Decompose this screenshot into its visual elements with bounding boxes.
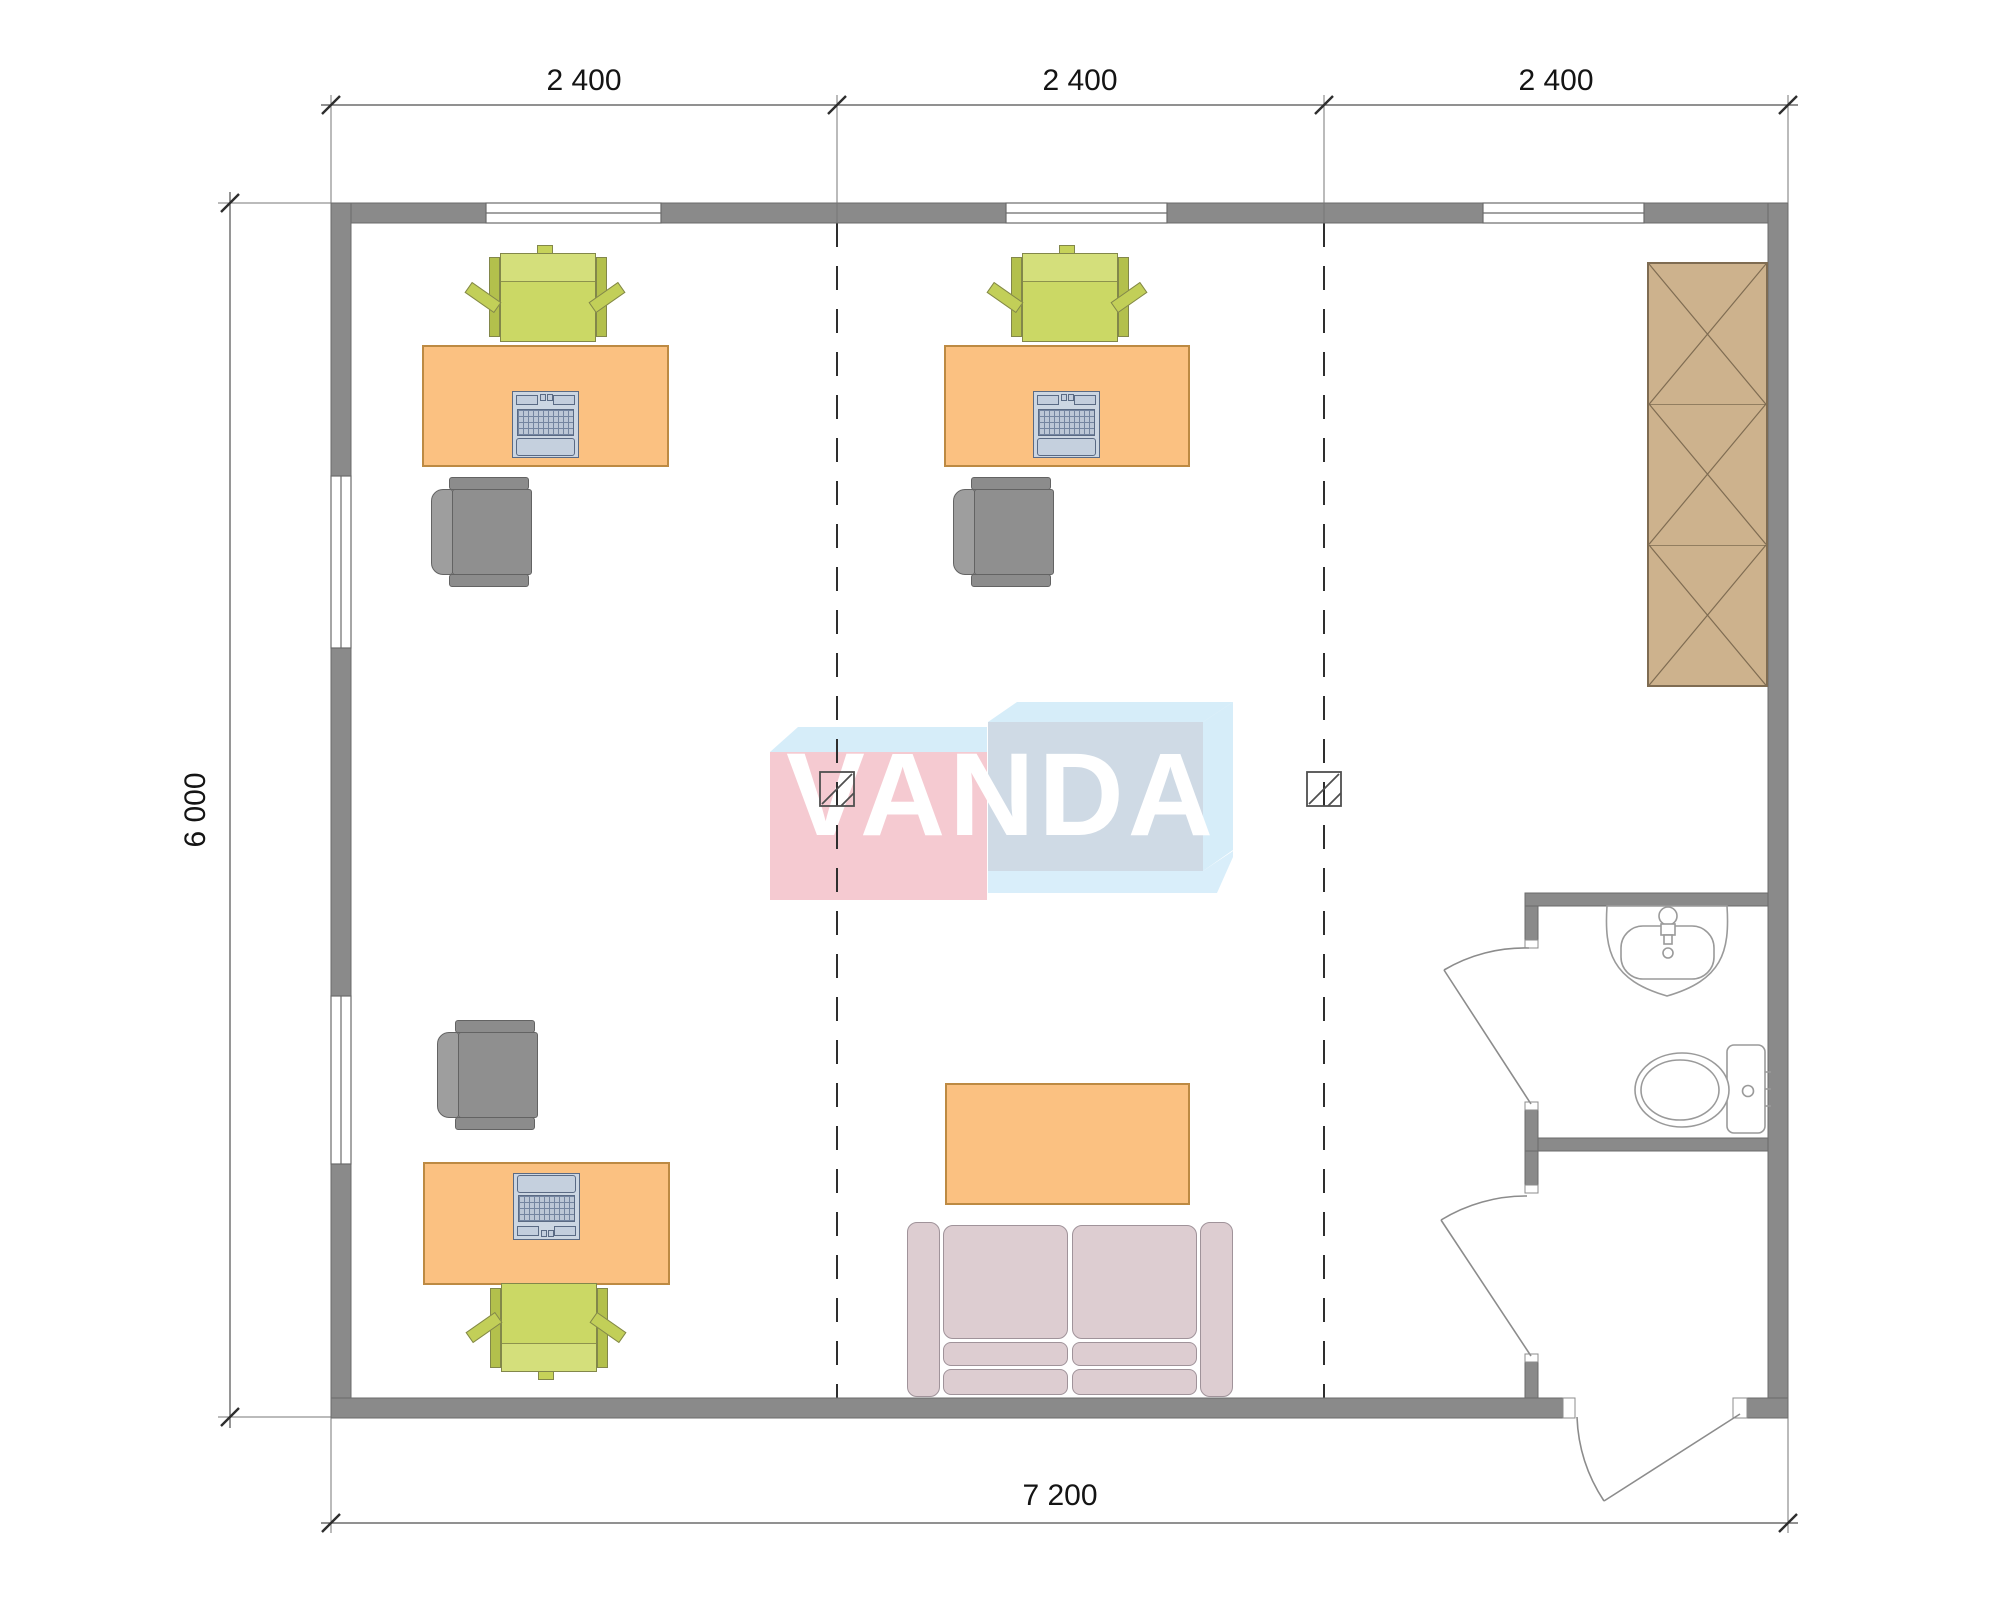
office-chair-backrest	[431, 489, 453, 575]
laptop-screen	[517, 1175, 576, 1193]
dim-label-top-1: 2 400	[459, 64, 709, 98]
wardrobe-section	[1649, 545, 1766, 685]
office-chair-seat	[452, 489, 532, 575]
task-chair	[470, 1280, 622, 1380]
laptop-keyboard	[518, 1195, 575, 1222]
office-chair-backrest	[437, 1032, 459, 1118]
furniture-layer	[0, 0, 2000, 1599]
task-chair	[991, 245, 1143, 345]
office-chair-armrest-bottom	[449, 574, 529, 587]
task-chair-backrest	[1023, 254, 1117, 282]
sofa-armrest-right	[1200, 1222, 1233, 1397]
dim-label-top-2: 2 400	[955, 64, 1205, 98]
laptop-port-right	[553, 395, 575, 405]
office-chair	[431, 477, 532, 587]
sofa-seat-strip	[1072, 1369, 1197, 1395]
task-chair-backrest	[502, 1343, 596, 1371]
wardrobe	[1647, 262, 1768, 687]
laptop-hinge-2	[1068, 394, 1074, 401]
dim-label-bottom: 7 200	[935, 1478, 1185, 1514]
task-chair-seat	[501, 1283, 597, 1372]
laptop-hinge-1	[541, 1230, 547, 1237]
office-chair-armrest-bottom	[971, 574, 1051, 587]
office-chair-backrest	[953, 489, 975, 575]
laptop	[512, 391, 579, 458]
dim-label-top-3: 2 400	[1431, 64, 1681, 98]
office-chair-seat	[974, 489, 1054, 575]
laptop-port-right	[1074, 395, 1096, 405]
laptop	[1033, 391, 1100, 458]
laptop-port-left	[1037, 395, 1059, 405]
dim-label-left: 6 000	[176, 750, 216, 870]
sofa-armrest-left	[907, 1222, 940, 1397]
laptop-keyboard	[517, 409, 574, 436]
laptop-hinge-2	[548, 1230, 554, 1237]
task-chair-seat	[500, 253, 596, 342]
laptop-hinge-1	[540, 394, 546, 401]
laptop-screen	[516, 438, 575, 456]
sofa-seat-strip	[943, 1342, 1068, 1366]
sofa-cushion-right	[1072, 1225, 1197, 1339]
wardrobe-section	[1649, 264, 1766, 404]
sofa-cushion-left	[943, 1225, 1068, 1339]
task-chair-backrest	[501, 254, 595, 282]
coffee-table	[945, 1083, 1190, 1205]
office-chair	[437, 1020, 538, 1130]
floor-plan-canvas: VANDA	[0, 0, 2000, 1599]
laptop-keyboard	[1038, 409, 1095, 436]
laptop-screen	[1037, 438, 1096, 456]
office-chair-armrest-bottom	[455, 1117, 535, 1130]
sofa-seat-strip	[1072, 1342, 1197, 1366]
laptop	[513, 1173, 580, 1240]
laptop-port-right	[554, 1226, 576, 1236]
wardrobe-section	[1649, 404, 1766, 544]
laptop-hinge-2	[547, 394, 553, 401]
office-chair	[953, 477, 1054, 587]
office-chair-seat	[458, 1032, 538, 1118]
task-chair-seat	[1022, 253, 1118, 342]
sofa	[907, 1222, 1233, 1397]
laptop-port-left	[516, 395, 538, 405]
task-chair	[469, 245, 621, 345]
laptop-port-left	[517, 1226, 539, 1236]
laptop-hinge-1	[1061, 394, 1067, 401]
sofa-seat-strip	[943, 1369, 1068, 1395]
